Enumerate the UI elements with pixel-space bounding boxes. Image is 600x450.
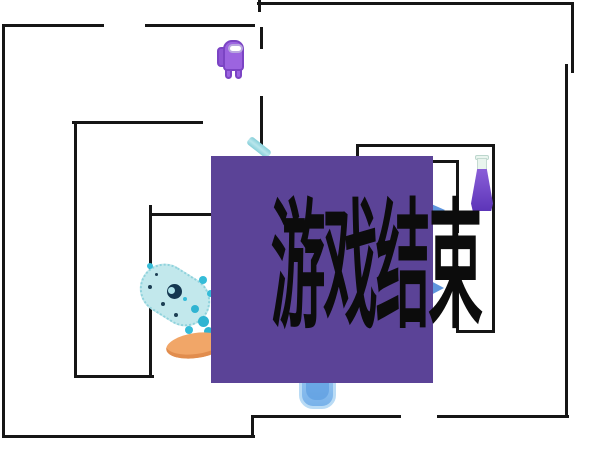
- creature-spot: [147, 263, 153, 269]
- maze-game-stage[interactable]: 游戏结束: [0, 0, 600, 450]
- crewmate-leg: [235, 69, 242, 79]
- creature-spot: [191, 305, 199, 313]
- creature-dot: [161, 302, 165, 306]
- game-over-title: 游戏结束: [271, 198, 373, 337]
- creature-dot: [148, 285, 152, 289]
- creature-spot: [198, 316, 209, 327]
- creature-dot: [155, 273, 158, 276]
- creature-eye-highlight: [168, 287, 175, 294]
- crewmate-visor: [228, 44, 243, 53]
- creature-dot: [174, 313, 178, 317]
- creature-spot: [183, 297, 187, 301]
- game-over-panel[interactable]: 游戏结束: [211, 156, 433, 383]
- creature-spot: [199, 276, 207, 284]
- player-crewmate-sprite: [217, 38, 245, 80]
- crewmate-leg: [225, 69, 232, 79]
